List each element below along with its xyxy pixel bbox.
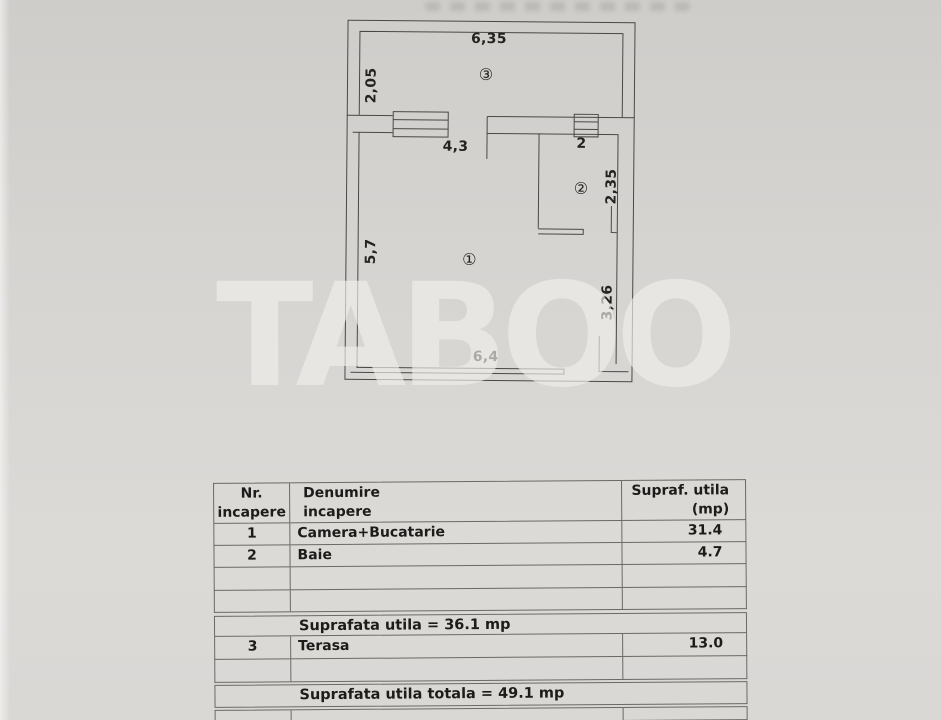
floor-plan-drawing bbox=[0, 0, 941, 464]
dimension-window-wall: 4,3 bbox=[437, 140, 473, 155]
cell-nr: 1 bbox=[214, 523, 290, 545]
cell-denumire: Baie bbox=[290, 543, 622, 566]
table-row-empty bbox=[214, 656, 747, 683]
room-marker-terrace: ③ bbox=[474, 67, 498, 82]
cell-nr bbox=[215, 659, 291, 682]
cell-nr bbox=[215, 590, 291, 612]
total-row: Suprafata utila totala = 49.1 mp bbox=[214, 681, 747, 708]
cell-nr bbox=[215, 567, 291, 590]
cell-denumire bbox=[292, 708, 624, 720]
dimension-right-side: 3,26 bbox=[600, 280, 615, 324]
col-header-nr: Nr. incapere bbox=[214, 483, 290, 523]
cell-denumire bbox=[291, 588, 623, 611]
floor-plan: 6,35 2,05 ③ 4,3 2 2,35 ② 5,7 ① 3,26 6,4 bbox=[0, 0, 941, 464]
area-table: Nr. incapere Denumire incapere Supraf. u… bbox=[213, 479, 748, 720]
table-header-row: Nr. incapere Denumire incapere Supraf. u… bbox=[213, 479, 746, 524]
cell-supraf bbox=[624, 707, 747, 720]
room-marker-bathroom: ② bbox=[569, 181, 593, 196]
table-row-empty bbox=[214, 587, 747, 613]
room-left-wall bbox=[357, 132, 359, 368]
room-bottom-wall bbox=[350, 367, 564, 374]
dimension-room-width: 6,4 bbox=[468, 350, 504, 365]
scanned-floor-plan-page: { "watermark": { "text": "TABOO" }, "flo… bbox=[0, 0, 941, 720]
dimension-room-depth: 5,7 bbox=[364, 234, 379, 268]
dimension-terrace-depth: 2,05 bbox=[364, 65, 379, 105]
cell-supraf: 31.4 bbox=[622, 520, 745, 542]
cell-supraf bbox=[623, 587, 746, 609]
dimension-terrace-width: 6,35 bbox=[466, 32, 511, 47]
room-marker-main-room: ① bbox=[457, 252, 481, 267]
cell-denumire bbox=[291, 565, 623, 589]
window-narrow-panes bbox=[574, 122, 598, 130]
window-wide-panes bbox=[393, 120, 448, 129]
bath-door-jamb bbox=[611, 206, 617, 233]
cell-nr: 2 bbox=[214, 545, 290, 567]
cell-supraf bbox=[623, 564, 746, 587]
cell-supraf: 13.0 bbox=[623, 633, 746, 656]
cell-supraf: 4.7 bbox=[622, 542, 745, 564]
table-row-partial bbox=[215, 706, 748, 720]
dimension-bath-width: 2 bbox=[571, 137, 591, 152]
cell-nr: 3 bbox=[215, 636, 291, 659]
cell-denumire: Camera+Bucatarie bbox=[290, 521, 622, 544]
col-header-denumire: Denumire incapere bbox=[290, 481, 622, 522]
cell-denumire bbox=[291, 657, 623, 681]
cell-nr bbox=[216, 710, 292, 720]
bath-left-wall bbox=[538, 133, 539, 228]
cell-supraf bbox=[623, 656, 746, 679]
bath-bottom-wall bbox=[538, 229, 583, 234]
cell-denumire: Terasa bbox=[291, 634, 623, 658]
dimension-bath-depth: 2,35 bbox=[604, 165, 619, 209]
corner-pillar bbox=[599, 336, 629, 372]
window-wide bbox=[393, 112, 448, 137]
col-header-supraf: Supraf. utila (mp) bbox=[622, 480, 745, 520]
top-wall-right bbox=[487, 116, 634, 117]
